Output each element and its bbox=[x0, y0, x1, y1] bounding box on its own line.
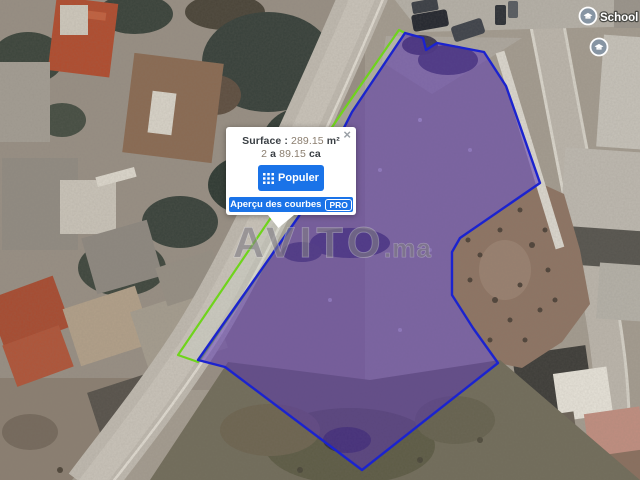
area-line: 2 a 89.15 ca bbox=[226, 148, 356, 160]
school-icon[interactable] bbox=[580, 8, 597, 25]
area-value-1: 2 bbox=[261, 148, 267, 160]
apercu-label: Aperçu des courbes bbox=[230, 199, 321, 210]
watermark-suffix: .ma bbox=[384, 233, 432, 263]
watermark-main: AVITO bbox=[233, 219, 385, 267]
surface-unit: m² bbox=[327, 135, 340, 147]
poi-label: School Ain bbox=[600, 12, 640, 24]
surface-line: Surface : 289.15 m² bbox=[226, 135, 356, 147]
area-value-2: 89.15 bbox=[279, 148, 306, 160]
school-icon-2[interactable] bbox=[591, 39, 608, 56]
satellite-map[interactable]: AVITO .ma School Ain bbox=[0, 0, 640, 480]
pro-badge: PRO bbox=[325, 199, 351, 211]
area-unit-2: ca bbox=[309, 148, 321, 160]
surface-popup: × Surface : 289.15 m² 2 a 89.15 ca Popul… bbox=[226, 127, 356, 215]
populer-label: Populer bbox=[278, 172, 319, 184]
close-icon[interactable]: × bbox=[343, 128, 351, 141]
apercu-courbes-button[interactable]: Aperçu des courbes PRO bbox=[229, 197, 353, 212]
area-unit-1: a bbox=[270, 148, 276, 160]
grid-icon bbox=[263, 173, 274, 184]
populer-button[interactable]: Populer bbox=[258, 165, 324, 191]
surface-label: Surface : bbox=[242, 135, 288, 147]
surface-value: 289.15 bbox=[291, 135, 324, 147]
map-viewport[interactable]: AVITO .ma School Ain × Surface : 289.15 … bbox=[0, 0, 640, 480]
